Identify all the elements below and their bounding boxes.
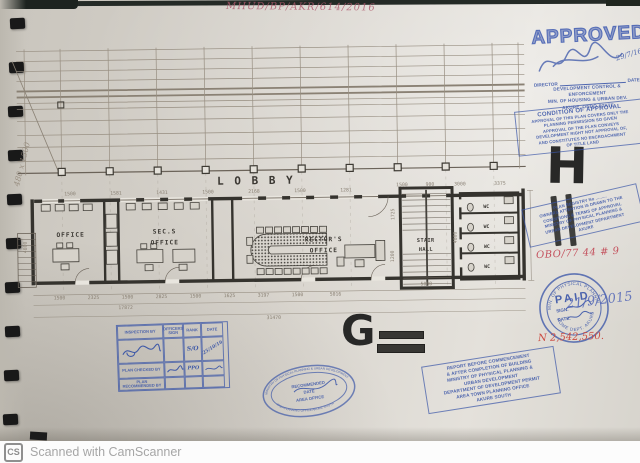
svg-text:1581: 1581 [110, 191, 122, 197]
approved-stamp: APPROVED 29/7/16 DIRECTOR DATE DEVELOPME… [531, 22, 640, 112]
svg-text:1500: 1500 [54, 295, 66, 301]
svg-text:1500: 1500 [292, 292, 304, 298]
rank-handwritten: PPO [187, 366, 199, 372]
camscanner-text: Scanned with CamScanner [30, 445, 181, 459]
svg-text:4800: 4800 [23, 242, 29, 254]
svg-text:1500: 1500 [64, 191, 76, 197]
oval-center-line: AREA OFFICE [296, 394, 325, 403]
camscanner-bar: CS Scanned with CamScanner [0, 441, 640, 463]
svg-text:1500: 1500 [202, 189, 214, 195]
marker-beam-bar [379, 331, 424, 339]
dimension-labels-bottom: 1500 2325 1500 2825 1500 1625 3197 1500 … [22, 208, 460, 325]
scanned-document-photo: MHUD/BP/AKR/614/2016 480 x 1500 L O [0, 0, 640, 463]
inspection-row1-officer-cell [163, 338, 184, 363]
inspection-row1-rank-cell: S/O [183, 337, 202, 362]
svg-text:1281: 1281 [340, 187, 352, 193]
room-label-wc: WC [484, 264, 490, 270]
room-label-wc: WC [484, 244, 490, 250]
svg-text:1500: 1500 [190, 293, 202, 299]
room-label-office: OFFICE [56, 232, 84, 239]
signature-scribble [165, 363, 183, 376]
room-label-rectors-office-2: OFFICE [310, 247, 338, 254]
rank-handwritten: S/O [187, 346, 199, 353]
inspection-header: RANK [183, 323, 201, 338]
reference-number-note: MHUD/BP/AKR/614/2016 [226, 1, 426, 14]
inspection-row1-date-cell: 25/10/16 [201, 336, 224, 361]
inspection-row2-date-cell [202, 360, 225, 376]
inspection-table-stamp: INSPECTION BY OFFICERS SIGN RANK DATE S/… [116, 321, 230, 392]
floor-plan-drawing: L O B B Y 1500 1581 1431 1500 2168 1500 … [2, 40, 540, 339]
inspection-header: DATE [201, 322, 223, 337]
svg-text:2168: 2168 [248, 189, 260, 195]
marker-letter-g: G [341, 310, 375, 352]
inspection-header: OFFICERS SIGN [163, 324, 183, 339]
svg-text:2825: 2825 [156, 294, 168, 300]
report-stamp: REPORT BEFORE COMMENCEMENT & AFTER COMPL… [421, 346, 561, 414]
svg-text:1200: 1200 [390, 250, 396, 262]
svg-text:5016: 5016 [330, 292, 342, 298]
room-label-sec-office-2: OFFICE [151, 239, 179, 246]
svg-text:1625: 1625 [224, 293, 236, 299]
svg-text:2325: 2325 [88, 295, 100, 301]
camscanner-logo: CS [4, 443, 23, 462]
svg-text:1725: 1725 [390, 208, 396, 220]
inspection-row3-sign-cell [165, 377, 185, 390]
svg-text:1431: 1431 [156, 190, 168, 196]
inspection-row3-date-cell [203, 375, 225, 388]
inspection-row2-sign-cell [164, 362, 185, 378]
inspection-row3-rank-cell [185, 376, 203, 389]
date-label: DATE [627, 77, 639, 83]
svg-text:4800: 4800 [453, 232, 459, 244]
room-label-rectors-office-1: RECTOR'S [305, 236, 343, 244]
marker-beam-bar [377, 344, 425, 353]
svg-text:31470: 31470 [267, 315, 282, 321]
room-label-wc: WC [484, 224, 490, 230]
binding-tab [10, 18, 26, 30]
svg-text:5000: 5000 [421, 281, 433, 287]
recommended-oval-stamp: MINISTRY OF PHYSICAL PLANNING & URBAN DE… [257, 357, 362, 424]
svg-text:3197: 3197 [258, 293, 270, 299]
inspection-row3-label: PLAN RECOMMENDED BY [119, 377, 165, 391]
svg-text:17872: 17872 [118, 305, 133, 311]
inspection-row2-label: PLAN CHECKED BY [118, 362, 164, 379]
room-label-stair-1: STAIR [417, 238, 435, 244]
lobby-label: L O B B Y [217, 174, 295, 188]
inspection-row1-sign-cell [117, 338, 164, 364]
paid-date-label: DATE. [557, 316, 571, 323]
room-label-sec-office-1: SEC.S [153, 228, 177, 235]
amount-note: N 2,542,550. [538, 331, 604, 344]
binding-tab [3, 414, 19, 426]
signature-scribble [203, 363, 223, 374]
room-label-stair-2: HALL [419, 247, 433, 253]
inspection-row2-rank-cell: PPO [184, 361, 203, 377]
binding-tab [4, 370, 20, 382]
svg-text:3000: 3000 [454, 181, 466, 187]
svg-text:1500: 1500 [294, 188, 306, 194]
paper-bottom-shadow [0, 427, 640, 441]
binding-shadow-chip [30, 432, 47, 441]
room-label-wc: WC [483, 204, 489, 210]
signature-scribble [118, 340, 163, 362]
svg-text:3375: 3375 [494, 181, 506, 187]
svg-text:1500: 1500 [122, 294, 134, 300]
photo-corner-shadow-right [606, 0, 640, 6]
date-handwritten: 25/10/16 [202, 340, 224, 356]
